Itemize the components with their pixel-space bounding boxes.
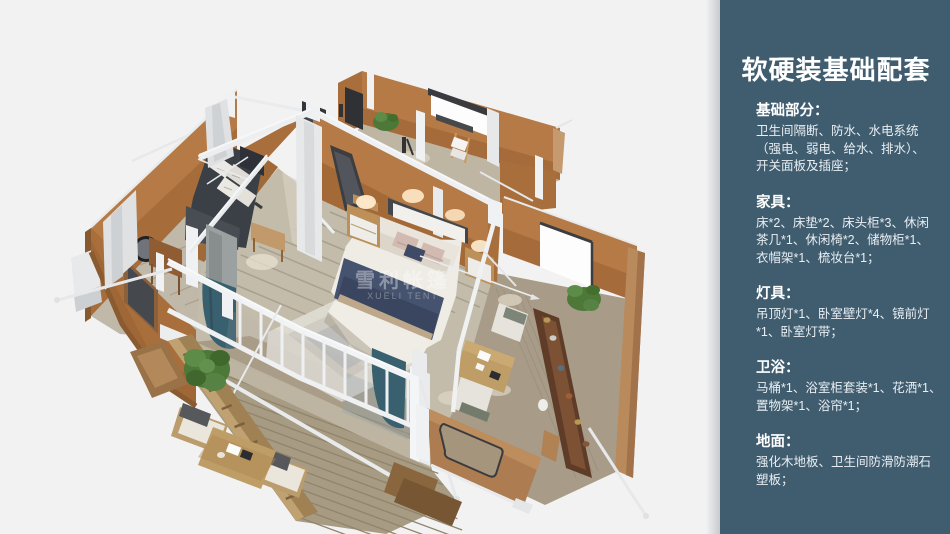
svg-text:雪利帐篷: 雪利帐篷 bbox=[355, 268, 451, 292]
svg-text:XUELI TENT: XUELI TENT bbox=[367, 291, 439, 301]
